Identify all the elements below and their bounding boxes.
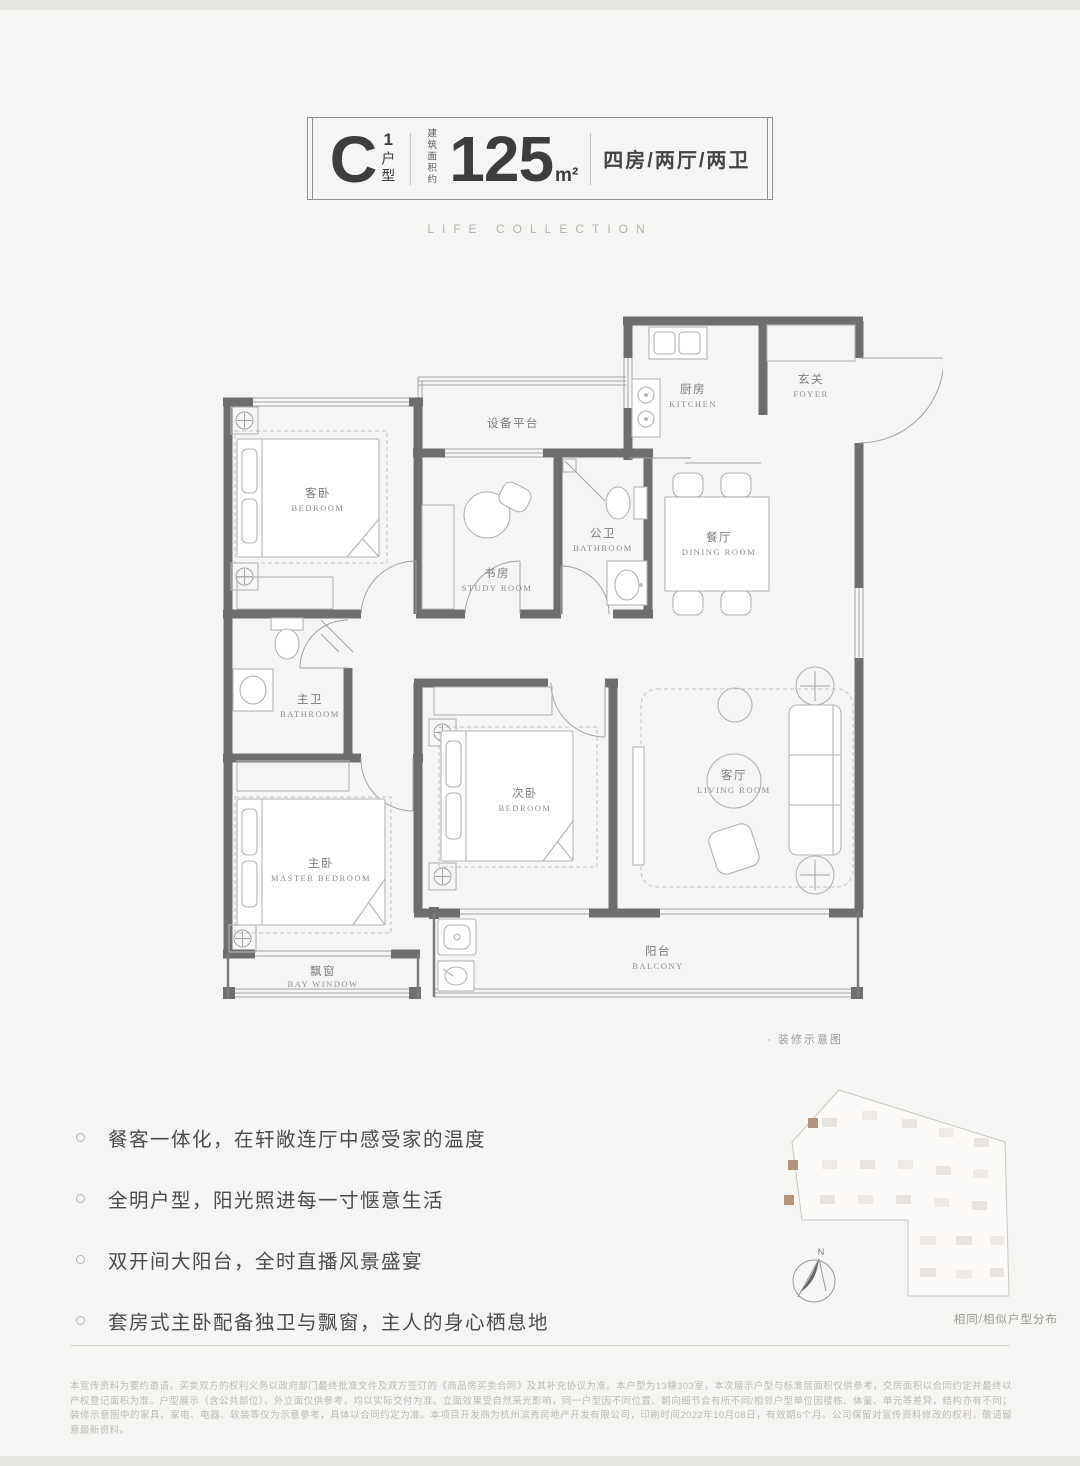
footer-divider	[70, 1345, 1010, 1346]
label-bay-window-cn: 飘窗	[310, 964, 336, 978]
feature-item: 餐客一体化，在轩敞连厅中感受家的温度	[76, 1124, 549, 1151]
label-public-bath-cn: 公卫	[590, 527, 616, 540]
balcony-sink	[438, 961, 474, 991]
area-unit: m²	[555, 164, 578, 188]
floorplan-svg: 设备平台 客卧 BEDROOM 书房 STUDY ROOM 公卫 BATHROO…	[213, 303, 943, 1051]
label-guest-bedroom-cn: 客卧	[305, 486, 331, 500]
dining-chair	[673, 591, 703, 615]
sink	[233, 669, 273, 711]
label-equipment-platform: 设备平台	[487, 416, 539, 430]
label-foyer-en: FOYER	[793, 389, 828, 399]
label-guest-bedroom-en: BEDROOM	[291, 503, 344, 513]
unit-type-suffix: 1 户型	[378, 129, 398, 185]
feature-text: 餐客一体化，在轩敞连厅中感受家的温度	[108, 1123, 486, 1152]
label-study-cn: 书房	[484, 567, 510, 580]
nightstand	[231, 407, 258, 434]
unit-type: C 1 户型	[330, 129, 399, 189]
stove	[632, 379, 660, 437]
toilet	[271, 618, 303, 630]
second-wardrobe	[434, 687, 552, 715]
sitemap-svg: N 相同/相似户型分布	[762, 1078, 1067, 1333]
bullet-ring-icon	[76, 1133, 85, 1142]
furniture	[229, 325, 855, 991]
feature-item: 套房式主卧配备独卫与飘窗，主人的身心栖息地	[76, 1307, 549, 1334]
label-public-bath-en: BATHROOM	[573, 543, 633, 553]
unit-header-box: C 1 户型 建筑面积约 125 m² 四房/两厅/两卫	[307, 117, 773, 200]
disclaimer-text: 本宣传资料为要约邀请，买卖双方的权利义务以政府部门最终批准文件及双方签订的《商品…	[70, 1380, 1012, 1438]
bullet-ring-icon	[76, 1316, 85, 1325]
label-master-bedroom-en: MASTER BEDROOM	[271, 873, 371, 883]
page-edge-top	[0, 0, 1080, 10]
plan-caption: · 装修示意图	[767, 1032, 843, 1046]
label-study-en: STUDY ROOM	[462, 583, 533, 593]
header-divider-1	[410, 133, 411, 185]
feature-item: 双开间大阳台，全时直播风景盛宴	[76, 1246, 549, 1273]
label-second-bedroom-en: BEDROOM	[498, 803, 551, 813]
feature-text: 套房式主卧配备独卫与飘窗，主人的身心栖息地	[108, 1306, 549, 1335]
unit-superscript: 1	[384, 131, 393, 148]
bullet-ring-icon	[76, 1255, 85, 1264]
sitemap-label: 相同/相似户型分布	[954, 1312, 1058, 1326]
header-divider-2	[590, 133, 591, 185]
dining-chair	[721, 473, 751, 497]
label-living-cn: 客厅	[721, 768, 747, 782]
subtitle: LIFE COLLECTION	[0, 222, 1080, 236]
room-layout-label: 四房/两厅/两卫	[603, 144, 750, 173]
toilet	[634, 487, 647, 519]
label-balcony-en: BALCONY	[632, 961, 684, 971]
sink	[607, 561, 647, 605]
dining-chair	[673, 473, 703, 497]
nightstand	[229, 925, 256, 952]
area-value: 125	[449, 130, 553, 188]
dining-table	[665, 497, 769, 591]
master-wardrobe	[237, 761, 349, 791]
label-living-en: LIVING ROOM	[697, 785, 770, 795]
flyer-page: C 1 户型 建筑面积约 125 m² 四房/两厅/两卫 LIFE COLLEC…	[0, 0, 1080, 1466]
unit-letter: C	[330, 129, 376, 189]
dining-chair	[721, 591, 751, 615]
compass-icon: N	[793, 1247, 835, 1302]
area-label: 建筑面积约	[423, 128, 437, 190]
label-second-bedroom-cn: 次卧	[512, 786, 538, 800]
label-kitchen-en: KITCHEN	[669, 399, 717, 409]
armchair	[706, 821, 761, 876]
feature-text: 全明户型，阳光照进每一寸惬意生活	[108, 1184, 444, 1213]
bullet-ring-icon	[76, 1194, 85, 1203]
foyer-closet	[767, 325, 855, 361]
feature-list: 餐客一体化，在轩敞连厅中感受家的温度 全明户型，阳光照进每一寸惬意生活 双开间大…	[76, 1124, 549, 1368]
unit-suffix-label: 户型	[378, 151, 398, 185]
label-foyer-cn: 玄关	[798, 372, 824, 386]
page-edge-bottom	[0, 1456, 1080, 1466]
label-bay-window-en: BAY WINDOW	[287, 979, 358, 989]
label-master-bedroom-cn: 主卧	[308, 857, 334, 870]
label-balcony-cn: 阳台	[645, 944, 671, 958]
study-cabinet	[422, 505, 454, 609]
label-master-bath-en: BATHROOM	[280, 709, 340, 719]
label-dining-en: DINING ROOM	[682, 547, 756, 557]
tv-console	[633, 747, 644, 865]
area: 125 m²	[449, 130, 578, 188]
compass-n-label: N	[818, 1247, 825, 1257]
label-master-bath-cn: 主卫	[297, 693, 323, 706]
feature-text: 双开间大阳台，全时直播风景盛宴	[108, 1245, 423, 1274]
feature-item: 全明户型，阳光照进每一寸惬意生活	[76, 1185, 549, 1212]
label-kitchen-cn: 厨房	[680, 383, 706, 396]
label-dining-cn: 餐厅	[706, 530, 732, 544]
